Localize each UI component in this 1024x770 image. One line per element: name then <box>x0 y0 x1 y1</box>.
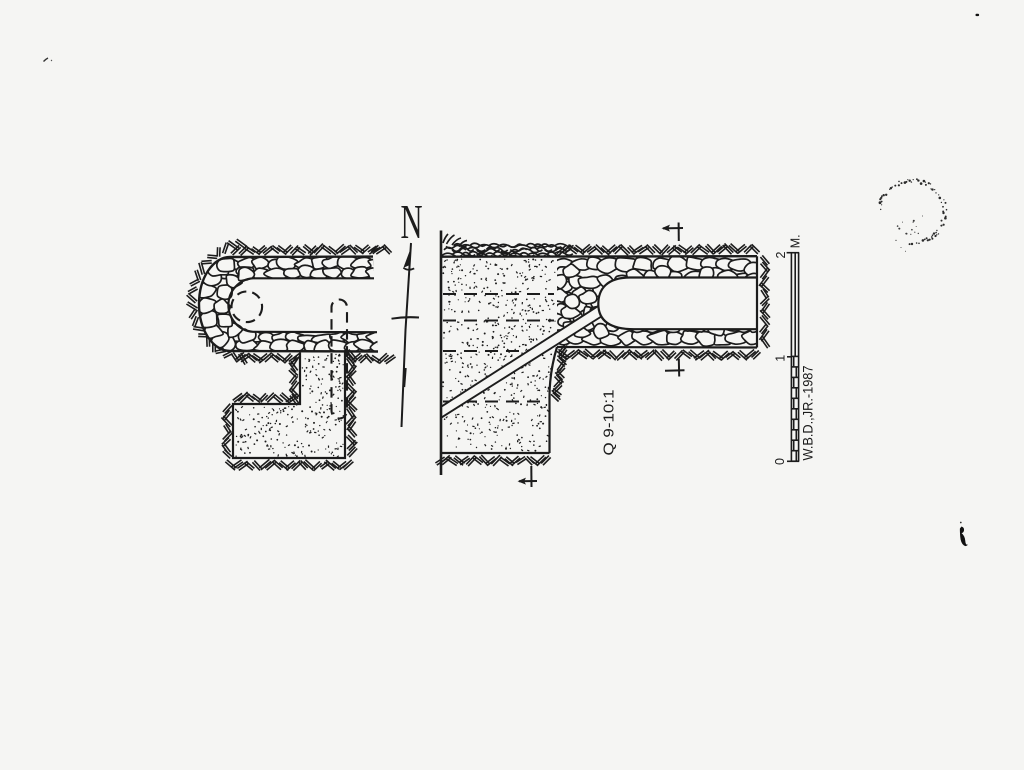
svg-text:N: N <box>400 195 422 249</box>
svg-text:M.: M. <box>789 234 803 248</box>
svg-text:2: 2 <box>774 251 788 258</box>
svg-text:0: 0 <box>773 458 787 465</box>
svg-text:W.B.D.,JR.-1987: W.B.D.,JR.-1987 <box>800 366 815 461</box>
svg-text:Q 9-10:1: Q 9-10:1 <box>602 390 618 456</box>
svg-text:1: 1 <box>773 355 787 362</box>
